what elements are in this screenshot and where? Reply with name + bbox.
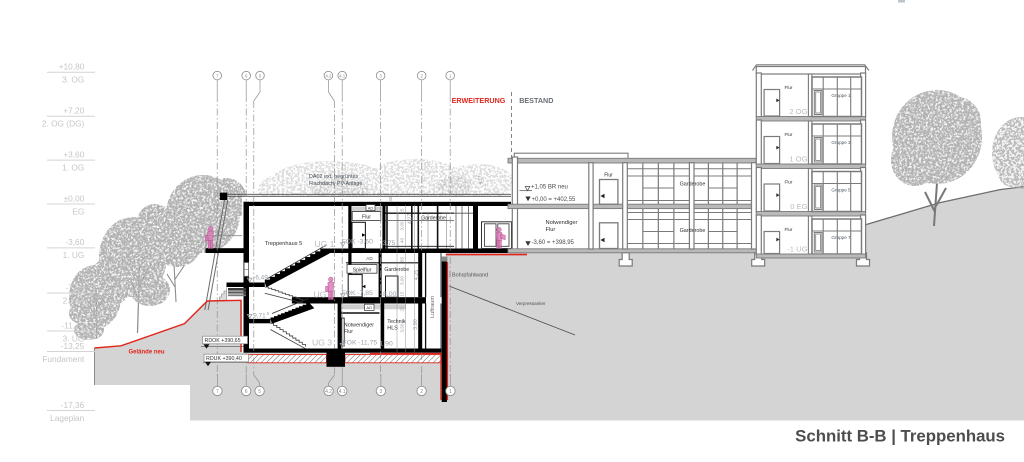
svg-text:0 EG: 0 EG (790, 202, 807, 211)
svg-text:-11,75: -11,75 (61, 320, 84, 330)
svg-text:9,71: 9,71 (253, 313, 266, 320)
svg-text:Luftraum: Luftraum (430, 296, 436, 318)
svg-text:+7,20: +7,20 (63, 106, 84, 116)
svg-text:2. OG (DG): 2. OG (DG) (42, 119, 85, 129)
svg-text:EG: EG (72, 206, 84, 216)
svg-text:Bohrpfahlwand: Bohrpfahlwand (452, 273, 488, 279)
svg-text:Gruppe 7: Gruppe 7 (831, 235, 851, 240)
svg-text:ERWEITERUNG: ERWEITERUNG (452, 96, 506, 105)
svg-text:Fundament: Fundament (42, 354, 85, 364)
svg-text:AD: AD (366, 256, 373, 261)
svg-text:-3,60 = +398,95: -3,60 = +398,95 (532, 240, 575, 246)
svg-text:3. OG: 3. OG (62, 75, 84, 85)
svg-text:Spielflur: Spielflur (353, 267, 372, 273)
svg-text:RDUK +390,40: RDUK +390,40 (206, 356, 242, 362)
svg-text:AD: AD (366, 305, 372, 310)
svg-text:AD: AD (368, 205, 374, 210)
svg-text:Gelände neu: Gelände neu (129, 350, 165, 356)
svg-text:FOK -11,75: FOK -11,75 (343, 340, 378, 347)
svg-text:+3,60: +3,60 (63, 149, 84, 159)
svg-text:Gruppe 3: Gruppe 3 (831, 140, 851, 145)
svg-text:-3,60: -3,60 (65, 237, 84, 247)
svg-text:2: 2 (420, 389, 423, 395)
svg-text:-17,36: -17,36 (61, 400, 85, 410)
svg-text:1. UG: 1. UG (63, 250, 85, 260)
svg-text:4,25: 4,25 (414, 270, 420, 281)
svg-text:Lageplan: Lageplan (50, 413, 85, 423)
svg-text:+10,80: +10,80 (59, 62, 85, 72)
svg-text:25: 25 (399, 306, 404, 312)
svg-text:-8,00: -8,00 (381, 291, 397, 298)
svg-text:3,90: 3,90 (413, 319, 419, 330)
svg-text:Verpressanker: Verpressanker (516, 301, 546, 306)
svg-text:15: 15 (399, 291, 404, 297)
svg-text:UG 3: UG 3 (312, 338, 332, 348)
svg-text:Flur: Flur (785, 132, 793, 137)
svg-text:Schnitt B-B | Treppenhaus: Schnitt B-B | Treppenhaus (795, 427, 1005, 446)
svg-text:RDOK +390,65: RDOK +390,65 (205, 338, 241, 344)
svg-text:6: 6 (245, 389, 248, 395)
svg-text:Garderobe: Garderobe (680, 182, 706, 188)
svg-text:-13,25: -13,25 (61, 341, 85, 351)
svg-text:4,27: 4,27 (478, 175, 483, 184)
svg-text:Flur: Flur (344, 329, 353, 335)
svg-text:Garderobe: Garderobe (680, 228, 706, 234)
svg-text:-7,85: -7,85 (65, 282, 84, 292)
svg-text:±0,00: ±0,00 (64, 193, 85, 203)
svg-text:1 OG: 1 OG (789, 155, 807, 164)
svg-text:3,50: 3,50 (399, 323, 404, 332)
svg-text:DA02 ext. begrüntes: DA02 ext. begrüntes (309, 174, 358, 180)
svg-text:4.1: 4.1 (339, 73, 346, 78)
svg-text:UG 1: UG 1 (315, 239, 335, 249)
svg-text:Gruppe 5: Gruppe 5 (831, 188, 851, 193)
svg-text:BESTAND: BESTAND (519, 96, 553, 105)
svg-text:Flur: Flur (785, 227, 793, 232)
svg-text:FOK -3,60: FOK -3,60 (342, 239, 374, 246)
svg-text:1,90: 1,90 (380, 340, 393, 347)
svg-text:Flur: Flur (604, 173, 613, 179)
svg-text:+1,05 BR neu: +1,05 BR neu (531, 184, 568, 190)
svg-text:Flur: Flur (785, 85, 793, 90)
svg-text:Notwendiger: Notwendiger (546, 220, 578, 226)
svg-text:-6,49: -6,49 (253, 274, 268, 281)
svg-text:Gruppe 1: Gruppe 1 (831, 93, 851, 98)
svg-text:Flachdach, PV-Anlage: Flachdach, PV-Anlage (309, 181, 362, 187)
svg-text:+0,00 = +402,55: +0,00 = +402,55 (532, 197, 577, 203)
svg-text:2 OG: 2 OG (789, 107, 807, 116)
svg-text:Treppenhaus 5: Treppenhaus 5 (265, 241, 302, 247)
svg-text:4.1: 4.1 (339, 389, 346, 395)
svg-text:3,00: 3,00 (399, 221, 404, 230)
svg-text:25: 25 (399, 208, 404, 214)
svg-text:-1 UG: -1 UG (787, 245, 807, 254)
svg-text:40: 40 (399, 238, 404, 244)
svg-text:4,27: 4,27 (408, 214, 414, 225)
svg-text:3,75: 3,75 (383, 240, 396, 247)
svg-text:7: 7 (216, 389, 219, 395)
svg-text:4.2: 4.2 (325, 389, 332, 395)
svg-text:Flur: Flur (785, 180, 793, 185)
svg-text:Notwendiger: Notwendiger (344, 323, 374, 329)
svg-text:3: 3 (380, 389, 383, 395)
svg-text:1: 1 (449, 389, 452, 395)
svg-text:HLS: HLS (387, 325, 398, 331)
svg-text:1. OG: 1. OG (62, 162, 84, 172)
svg-text:Garderobe: Garderobe (421, 215, 446, 221)
svg-text:Flur: Flur (546, 227, 556, 233)
svg-text:FOK -7,85: FOK -7,85 (342, 290, 374, 297)
svg-text:85: 85 (399, 257, 404, 263)
svg-text:4.2: 4.2 (325, 73, 332, 78)
svg-text:2. UG: 2. UG (63, 295, 85, 305)
svg-text:3,00: 3,00 (399, 276, 404, 285)
svg-text:Flur: Flur (362, 214, 371, 220)
svg-text:40: 40 (388, 196, 393, 201)
svg-text:5: 5 (258, 389, 261, 395)
